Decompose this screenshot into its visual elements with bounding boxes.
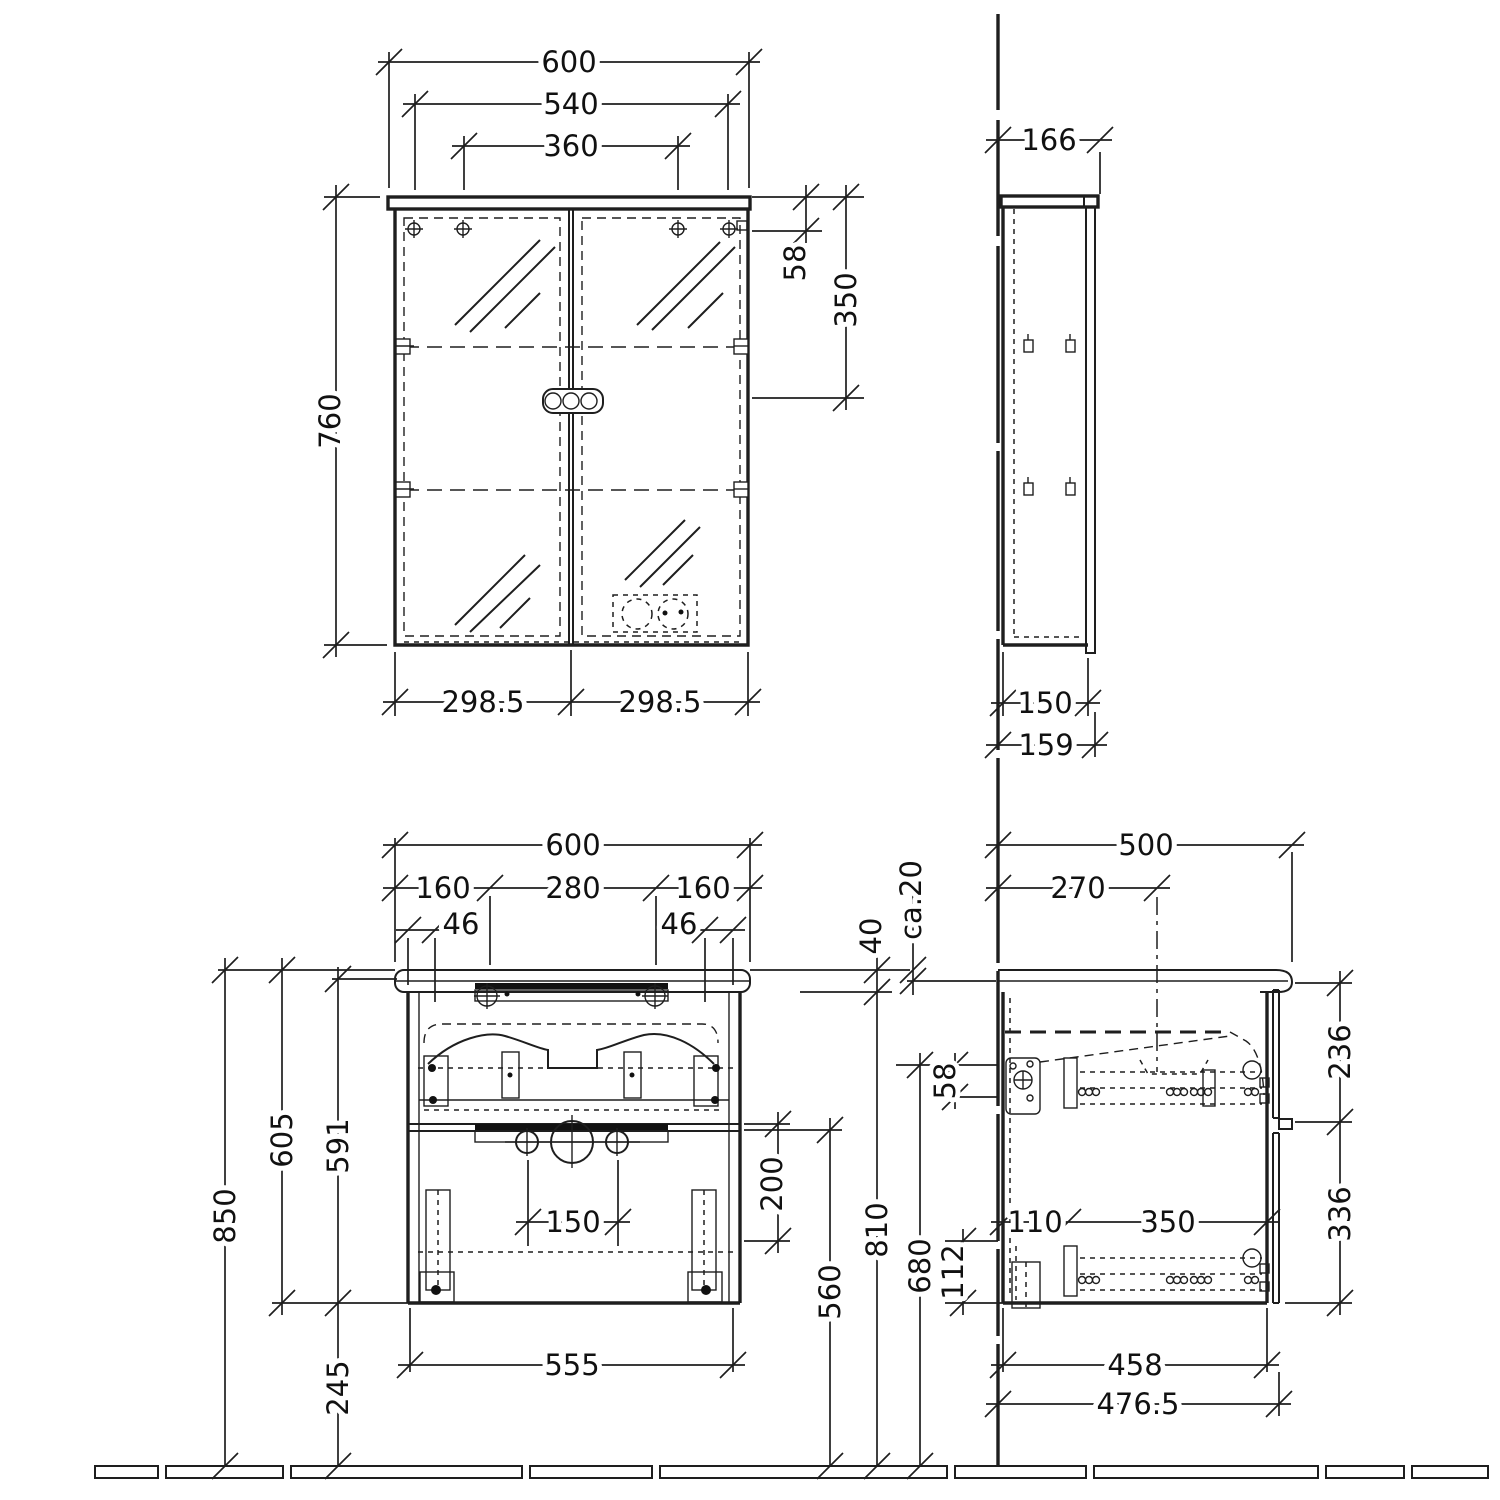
dim-side-rail-length: 350 — [1140, 1205, 1195, 1239]
handle-icon — [543, 389, 603, 413]
dim-hole-right: 160 — [675, 871, 730, 905]
dim-vanity-total-width: 600 — [545, 828, 600, 862]
dim-hole-left: 160 — [415, 871, 470, 905]
dim-edge-left: 46 — [443, 907, 480, 941]
dim-mirror-mount-spacing: 350 — [829, 272, 863, 327]
dim-carcass-width: 555 — [544, 1348, 599, 1382]
dim-mirror-depth-front: 159 — [1018, 728, 1073, 762]
dim-mirror-door-left: 298.5 — [441, 685, 524, 719]
dim-floor-clearance: 245 — [321, 1360, 355, 1415]
dim-side-top-drawer: 236 — [1323, 1024, 1357, 1079]
dim-mirror-door-right: 298.5 — [618, 685, 701, 719]
dim-mirror-height: 760 — [313, 393, 347, 448]
dim-basin-edge: 40 — [854, 918, 888, 955]
dim-drain-spacing: 150 — [545, 1205, 600, 1239]
dim-mirror-total-width: 600 — [541, 45, 596, 79]
dim-edge-right: 46 — [661, 907, 698, 941]
top-rail-bar — [475, 983, 668, 989]
dim-drawer-inner: 200 — [755, 1156, 789, 1211]
dim-total-height: 850 — [208, 1188, 242, 1243]
dim-side-rail-bottom: 112 — [936, 1244, 970, 1299]
dim-hole-center: 280 — [545, 871, 600, 905]
dim-side-rail-back: 110 — [1007, 1205, 1062, 1239]
dim-divider-height: 560 — [813, 1264, 847, 1319]
dim-side-total-depth: 500 — [1118, 828, 1173, 862]
dim-rim-height: 810 — [860, 1202, 894, 1257]
dim-side-carcass-depth: 458 — [1107, 1348, 1162, 1382]
drawing-canvas: 600 540 360 760 58 350 298.5 298.5 — [0, 0, 1500, 1500]
dim-mirror-top-offset: 58 — [778, 245, 812, 282]
dim-overhang: ca.20 — [894, 860, 928, 940]
dim-side-bottom-drawer: 336 — [1323, 1186, 1357, 1241]
dim-side-overall-depth: 476.5 — [1096, 1387, 1179, 1421]
dim-side-faucet-depth: 270 — [1050, 871, 1105, 905]
dim-mirror-inner-width: 360 — [543, 129, 598, 163]
dim-basin-to-bottom: 605 — [265, 1112, 299, 1167]
dim-mirror-depth-body: 150 — [1017, 686, 1072, 720]
technical-drawing-page: 600 540 360 760 58 350 298.5 298.5 — [0, 0, 1500, 1500]
dim-drain-height: 680 — [903, 1238, 937, 1293]
dim-mirror-depth-total: 166 — [1021, 123, 1076, 157]
dim-mirror-hanger-width: 540 — [543, 87, 598, 121]
dim-carcass-height: 591 — [321, 1118, 355, 1173]
dim-side-rail-top: 58 — [928, 1063, 962, 1100]
